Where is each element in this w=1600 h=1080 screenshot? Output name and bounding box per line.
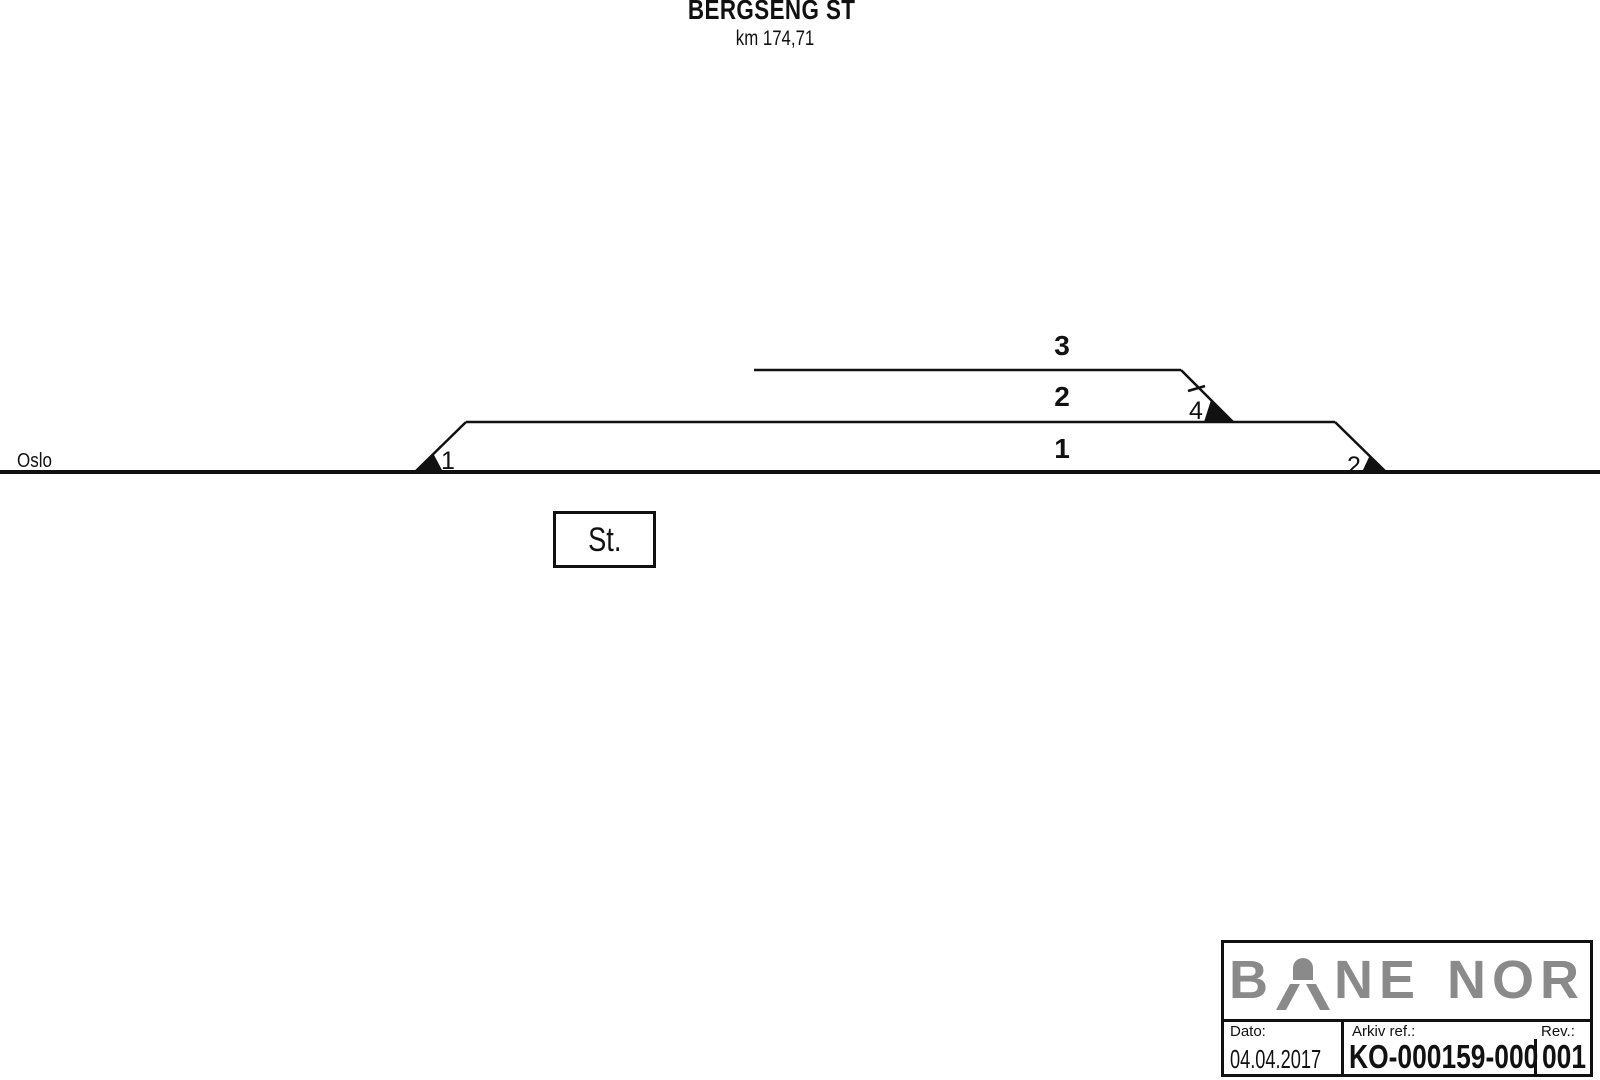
logo-part-nor: NOR (1447, 953, 1585, 1007)
kilometer-subtitle: km 174,71 (0, 28, 1550, 49)
track-diagram (0, 0, 1600, 1080)
switch-2-label: 2 (1342, 454, 1366, 479)
switch-1-label: 1 (436, 449, 460, 474)
revision-value: 001 (1542, 1040, 1597, 1073)
station-building-label: St. (588, 523, 621, 557)
date-value: 04.04.2017 (1230, 1046, 1360, 1072)
title-block-horizontal-divider (1224, 1019, 1590, 1022)
station-name: BERGSENG ST (688, 0, 855, 24)
bane-nor-logo: B NE NOR (1229, 953, 1585, 1010)
bane-nor-a-mark-icon (1276, 958, 1330, 1010)
track-2-label: 2 (1047, 383, 1077, 411)
schematic-track-plan-page: BERGSENG ST km 174,71 Oslo 3 2 1 1 2 4 S… (0, 0, 1600, 1080)
track-1-label: 1 (1047, 435, 1077, 463)
switch-4-label: 4 (1184, 399, 1208, 424)
revision-label: Rev.: (1541, 1024, 1575, 1039)
station-building-box: St. (553, 511, 656, 568)
logo-part-ne: NE (1334, 953, 1421, 1007)
title-block: B NE NOR Dato: 04.04.2017 Arkiv ref.: KO… (1221, 940, 1593, 1077)
logo-part-b: B (1229, 953, 1274, 1007)
date-label: Dato: (1230, 1024, 1266, 1039)
page-title: BERGSENG ST (0, 0, 1544, 24)
origin-direction-label: Oslo (17, 451, 58, 471)
logo-row: B NE NOR (1224, 943, 1590, 1019)
kilometer-value: km 174,71 (736, 28, 814, 49)
archive-ref-label: Arkiv ref.: (1352, 1024, 1415, 1039)
track-3-label: 3 (1047, 332, 1077, 360)
switch-4-symbol (1204, 400, 1233, 422)
